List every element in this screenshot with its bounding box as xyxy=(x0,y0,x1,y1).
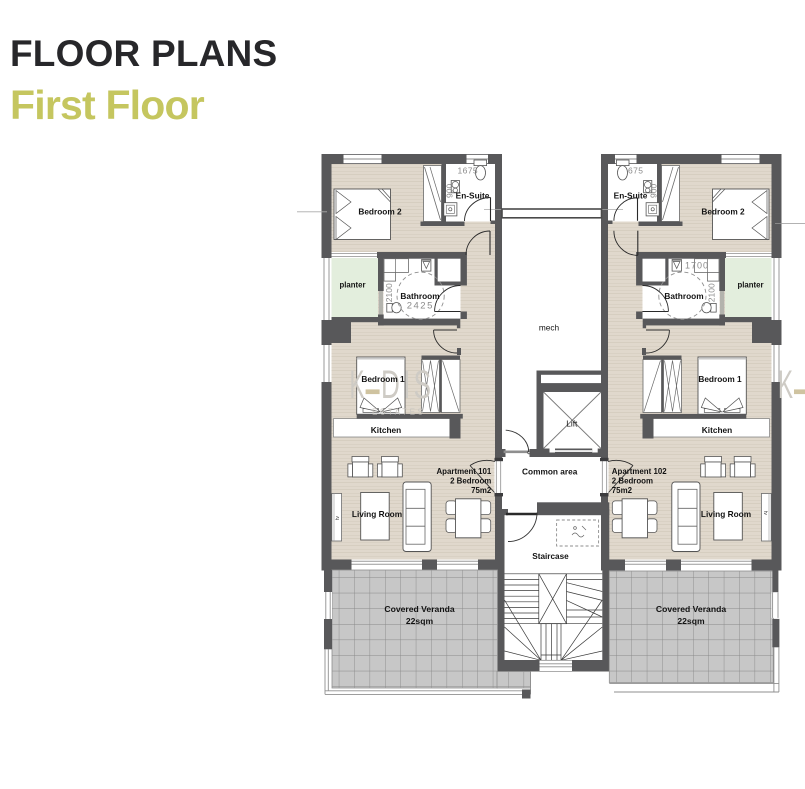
svg-text:2425: 2425 xyxy=(407,301,434,312)
svg-text:Kitchen: Kitchen xyxy=(371,425,401,435)
svg-text:22sqm: 22sqm xyxy=(406,616,434,626)
svg-text:Bathroom: Bathroom xyxy=(400,291,439,301)
svg-text:ESTATES: ESTATES xyxy=(372,408,425,417)
svg-text:tv: tv xyxy=(335,516,341,520)
svg-text:DIS: DIS xyxy=(381,364,434,408)
svg-text:Staircase: Staircase xyxy=(532,552,569,561)
svg-text:675: 675 xyxy=(628,166,643,176)
svg-text:Bedroom 2: Bedroom 2 xyxy=(358,207,402,217)
svg-text:900: 900 xyxy=(649,184,659,198)
svg-text:tv: tv xyxy=(762,511,768,515)
svg-text:Living Room: Living Room xyxy=(352,509,402,519)
svg-text:1675: 1675 xyxy=(458,166,479,176)
svg-text:Lift: Lift xyxy=(566,419,578,429)
svg-text:75m2: 75m2 xyxy=(471,486,492,495)
svg-text:Common area: Common area xyxy=(522,467,578,477)
svg-text:2100: 2100 xyxy=(384,283,394,302)
svg-text:2 Bedroom: 2 Bedroom xyxy=(612,477,653,486)
svg-text:En-Suite: En-Suite xyxy=(456,191,490,201)
svg-text:Covered Veranda: Covered Veranda xyxy=(656,604,726,614)
svg-text:Bathroom: Bathroom xyxy=(664,291,703,301)
svg-text:mech: mech xyxy=(539,323,560,333)
svg-text:planter: planter xyxy=(738,281,764,290)
svg-text:Bedroom 1: Bedroom 1 xyxy=(698,374,742,384)
svg-text:Bedroom 1: Bedroom 1 xyxy=(361,374,405,384)
svg-text:2 Bedroom: 2 Bedroom xyxy=(450,477,491,486)
svg-text:22sqm: 22sqm xyxy=(677,616,705,626)
svg-text:planter: planter xyxy=(340,281,366,290)
svg-text:Kitchen: Kitchen xyxy=(702,425,732,435)
svg-text:75m2: 75m2 xyxy=(612,486,633,495)
svg-text:Apartment 102: Apartment 102 xyxy=(612,467,667,476)
svg-text:En-Suite: En-Suite xyxy=(614,191,648,201)
svg-text:K: K xyxy=(778,362,793,406)
svg-text:K: K xyxy=(350,362,365,406)
svg-text:Living Room: Living Room xyxy=(701,509,751,519)
svg-text:Covered Veranda: Covered Veranda xyxy=(384,604,454,614)
svg-text:900: 900 xyxy=(445,184,455,198)
svg-text:2100: 2100 xyxy=(707,283,717,302)
svg-text:1700: 1700 xyxy=(685,261,709,271)
svg-text:Apartment 101: Apartment 101 xyxy=(436,467,491,476)
svg-text:Bedroom 2: Bedroom 2 xyxy=(701,207,745,217)
